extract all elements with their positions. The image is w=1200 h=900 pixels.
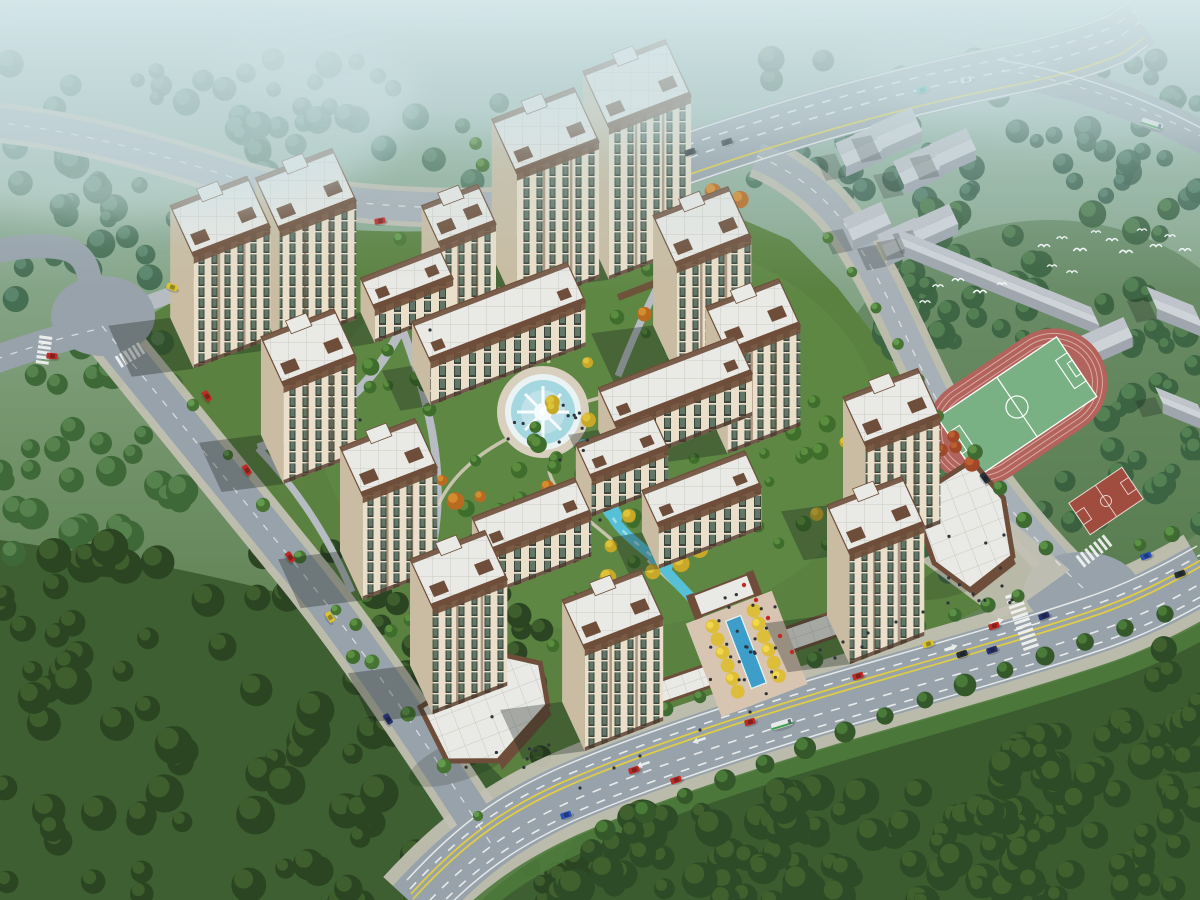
pedestrian-dot: [773, 605, 776, 608]
pedestrian-dot: [744, 645, 747, 648]
pedestrian-dot: [743, 678, 746, 681]
red-banner-dot: [790, 650, 794, 654]
pedestrian-dot: [774, 676, 777, 679]
pedestrian-dot: [724, 596, 727, 599]
pedestrian-dot: [748, 710, 751, 713]
pedestrian-dot: [921, 610, 924, 613]
pedestrian-dot: [977, 599, 980, 602]
pedestrian-dot: [958, 583, 961, 586]
pedestrian-dot: [698, 728, 701, 731]
pedestrian-dot: [1010, 598, 1013, 601]
pedestrian-dot: [749, 650, 752, 653]
pedestrian-dot: [717, 619, 720, 622]
pedestrian-dot: [578, 786, 581, 789]
pedestrian-dot: [866, 631, 869, 634]
pedestrian-dot: [612, 766, 615, 769]
pedestrian-dot: [753, 637, 756, 640]
pedestrian-dot: [765, 692, 768, 695]
pedestrian-dot: [709, 646, 712, 649]
pedestrian-dot: [526, 757, 529, 760]
pedestrian-dot: [841, 640, 844, 643]
pedestrian-dot: [547, 743, 550, 746]
pedestrian-dot: [729, 655, 732, 658]
pedestrian-dot: [495, 751, 498, 754]
pedestrian-dot: [725, 643, 728, 646]
pedestrian-dot: [1008, 601, 1011, 604]
red-banner-dot: [766, 616, 770, 620]
red-banner-dot: [778, 634, 782, 638]
pedestrian-dot: [751, 604, 754, 607]
pedestrian-dot: [738, 660, 741, 663]
pedestrian-dot: [1000, 584, 1003, 587]
pedestrian-dot: [946, 601, 949, 604]
red-banner-dot: [742, 583, 746, 587]
pedestrian-dot: [860, 645, 863, 648]
pedestrian-dot: [774, 646, 777, 649]
pedestrian-dot: [464, 766, 467, 769]
pedestrian-dot: [709, 678, 712, 681]
pedestrian-dot: [522, 766, 525, 769]
pedestrian-dot: [735, 593, 738, 596]
pedestrian-dot: [534, 749, 537, 752]
pedestrian-dot: [894, 620, 897, 623]
pedestrian-dot: [947, 576, 950, 579]
pedestrian-dot: [490, 715, 493, 718]
pedestrian-dot: [736, 630, 739, 633]
atmosphere-haze: [0, 0, 1200, 560]
pedestrian-dot: [727, 606, 730, 609]
pedestrian-dot: [983, 599, 986, 602]
pedestrian-dot: [833, 656, 836, 659]
pedestrian-dot: [999, 566, 1002, 569]
pedestrian-dot: [528, 747, 531, 750]
pedestrian-dot: [638, 754, 641, 757]
pedestrian-dot: [818, 648, 821, 651]
pedestrian-dot: [753, 650, 756, 653]
aerial-rendering-residential-complex: [0, 0, 1200, 900]
pedestrian-dot: [765, 627, 768, 630]
red-banner-dot: [754, 598, 758, 602]
pedestrian-dot: [738, 678, 741, 681]
pedestrian-dot: [770, 670, 773, 673]
pedestrian-dot: [760, 607, 763, 610]
pedestrian-dot: [971, 592, 974, 595]
scene-canvas: [0, 0, 1200, 900]
